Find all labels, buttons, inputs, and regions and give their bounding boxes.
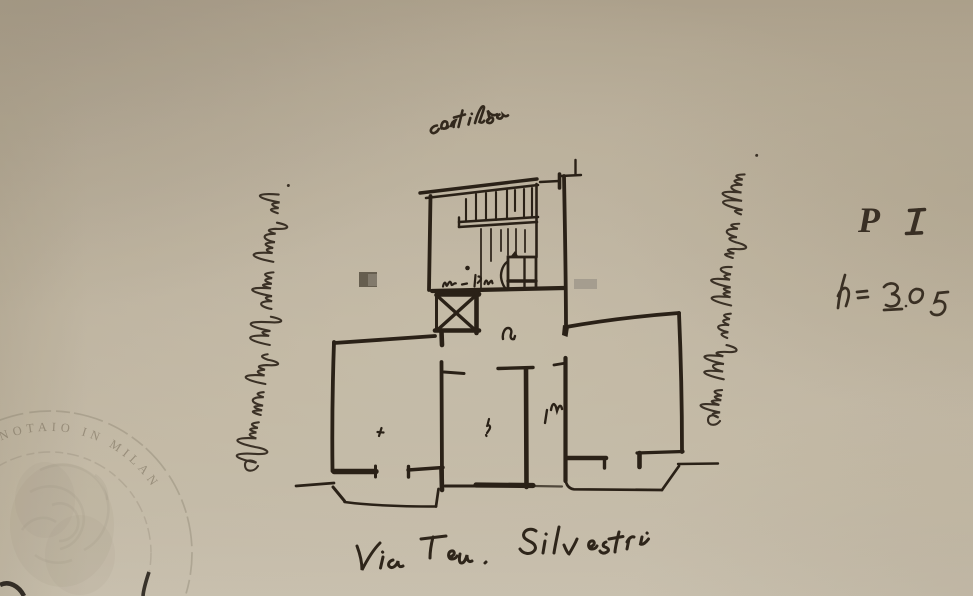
svg-text:P: P xyxy=(857,200,881,240)
